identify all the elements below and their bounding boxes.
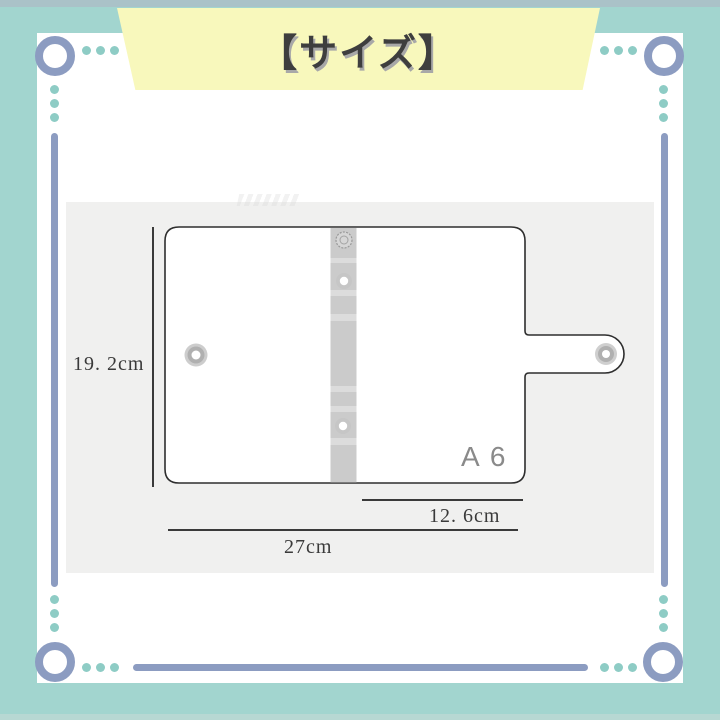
spine-grommet-icon xyxy=(336,273,352,289)
cover-outline xyxy=(165,227,624,483)
dot-icon xyxy=(659,623,668,632)
dot-icon xyxy=(110,663,119,672)
dots-bottom-left xyxy=(82,663,119,672)
notebook-cover-diagram xyxy=(66,202,654,573)
dot-icon xyxy=(614,46,623,55)
snap-button-icon xyxy=(185,344,208,367)
title-ribbon: 【サイズ】 xyxy=(117,8,600,90)
dots-bottom-right xyxy=(600,663,637,672)
dot-icon xyxy=(614,663,623,672)
dot-icon xyxy=(50,609,59,618)
dot-icon xyxy=(50,113,59,122)
dot-icon xyxy=(96,663,105,672)
corner-ring-icon xyxy=(35,36,75,76)
dot-icon xyxy=(50,99,59,108)
dots-left-lower xyxy=(50,595,59,632)
frame-line-right xyxy=(661,133,668,587)
dots-right-upper xyxy=(659,85,668,122)
dots-top-left xyxy=(82,46,119,55)
dot-icon xyxy=(600,663,609,672)
paper-size-label: A 6 xyxy=(461,441,507,473)
height-dimension-label: 19. 2cm xyxy=(73,353,144,376)
flap-width-dimension-label: 12. 6cm xyxy=(429,505,500,528)
dot-icon xyxy=(659,85,668,94)
dots-left-upper xyxy=(50,85,59,122)
spine-strip xyxy=(331,228,357,483)
dot-icon xyxy=(600,46,609,55)
spine-grommet-icon xyxy=(335,418,351,434)
dot-icon xyxy=(50,623,59,632)
dot-icon xyxy=(628,46,637,55)
corner-ring-icon xyxy=(644,36,684,76)
screw-rivet-icon xyxy=(336,232,352,248)
dot-icon xyxy=(50,595,59,604)
dot-icon xyxy=(659,609,668,618)
page-title: 【サイズ】 xyxy=(259,22,458,77)
dot-icon xyxy=(659,595,668,604)
dot-icon xyxy=(82,663,91,672)
frame-line-bottom xyxy=(133,664,588,671)
dot-icon xyxy=(50,85,59,94)
strap-snap-button-icon xyxy=(595,343,617,365)
dot-icon xyxy=(82,46,91,55)
corner-ring-icon xyxy=(35,642,75,682)
bottom-edge-strip xyxy=(0,714,720,720)
dot-icon xyxy=(628,663,637,672)
dot-icon xyxy=(659,99,668,108)
dots-right-lower xyxy=(659,595,668,632)
total-width-dimension-label: 27cm xyxy=(284,536,332,559)
dot-icon xyxy=(659,113,668,122)
top-edge-strip xyxy=(0,0,720,7)
dot-icon xyxy=(96,46,105,55)
frame-line-left xyxy=(51,133,58,587)
corner-ring-icon xyxy=(643,642,683,682)
dot-icon xyxy=(110,46,119,55)
dots-top-right xyxy=(600,46,637,55)
